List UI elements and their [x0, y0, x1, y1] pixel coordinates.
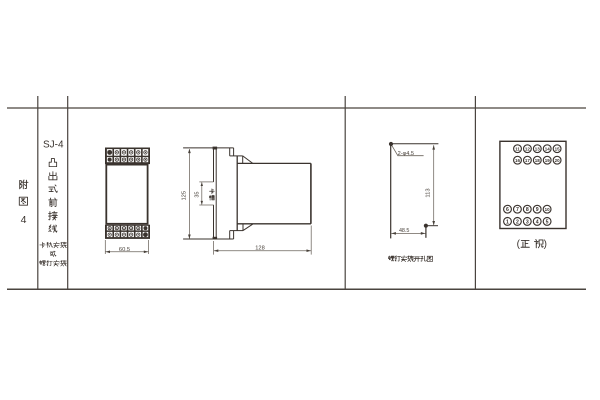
- svg-text:60.5: 60.5: [119, 247, 130, 253]
- svg-text:1: 1: [506, 219, 509, 225]
- svg-text:15: 15: [555, 146, 561, 151]
- svg-text:16: 16: [515, 158, 521, 163]
- svg-text:2-φ4.5: 2-φ4.5: [398, 151, 414, 157]
- svg-text:(: (: [517, 239, 521, 250]
- svg-text:): ): [544, 239, 547, 250]
- svg-text:12: 12: [525, 146, 531, 151]
- svg-text:9: 9: [536, 207, 539, 213]
- svg-text:17: 17: [525, 158, 531, 163]
- svg-text:8: 8: [526, 207, 529, 213]
- svg-text:18: 18: [535, 158, 541, 163]
- svg-text:48.5: 48.5: [399, 228, 410, 234]
- svg-text:125: 125: [181, 191, 187, 201]
- svg-text:7: 7: [516, 207, 519, 213]
- svg-text:13: 13: [535, 146, 541, 151]
- svg-text:20: 20: [555, 158, 561, 163]
- svg-text:113: 113: [425, 188, 431, 197]
- svg-text:128: 128: [255, 246, 265, 252]
- svg-text:11: 11: [515, 146, 520, 151]
- svg-text:35: 35: [194, 192, 200, 198]
- svg-text:4: 4: [21, 214, 27, 226]
- svg-text:6: 6: [506, 207, 509, 213]
- svg-text:5: 5: [546, 219, 549, 225]
- svg-text:3: 3: [526, 219, 529, 225]
- svg-text:10: 10: [545, 207, 551, 212]
- svg-text:19: 19: [545, 158, 551, 163]
- svg-text:2: 2: [516, 219, 519, 225]
- svg-text:14: 14: [545, 146, 551, 151]
- svg-text:4: 4: [536, 219, 539, 225]
- svg-text:SJ-4: SJ-4: [43, 140, 64, 151]
